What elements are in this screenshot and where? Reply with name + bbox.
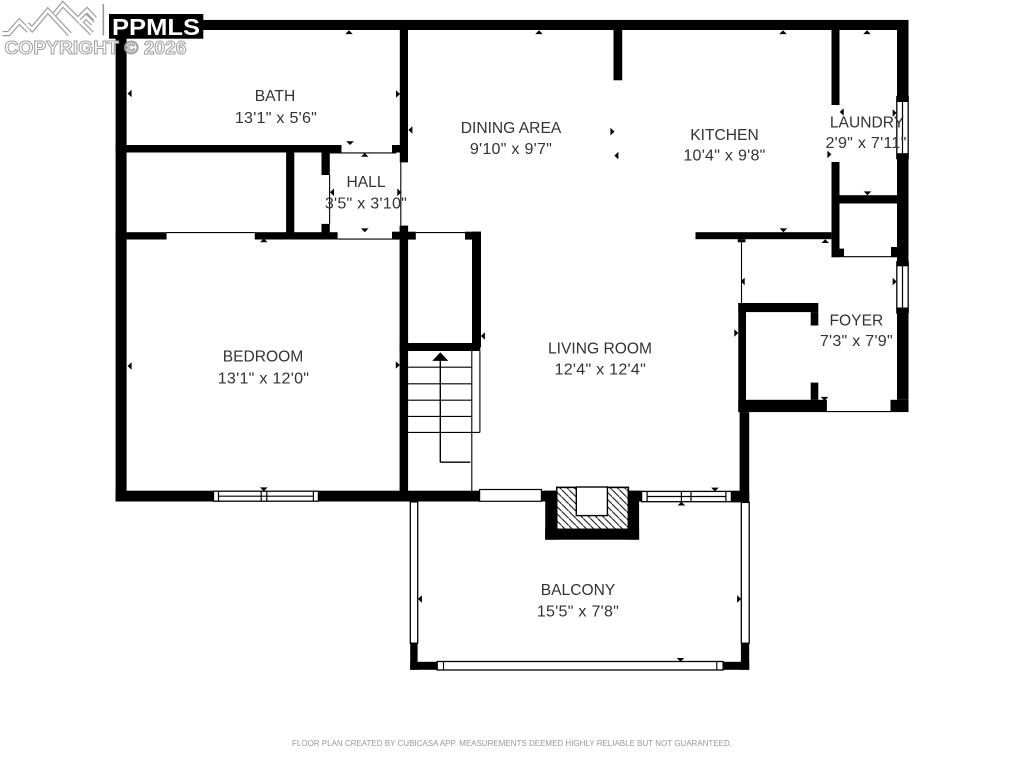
svg-text:FLOOR PLAN CREATED BY CUBICASA: FLOOR PLAN CREATED BY CUBICASA APP. MEAS… [292,739,732,748]
svg-text:BATH: BATH [255,88,295,105]
svg-text:2'9" x 7'11": 2'9" x 7'11" [825,134,906,152]
svg-text:7'3" x 7'9": 7'3" x 7'9" [820,332,893,350]
svg-text:BALCONY: BALCONY [541,582,616,599]
svg-text:FOYER: FOYER [830,312,884,329]
svg-text:LAUNDRY: LAUNDRY [830,114,905,131]
svg-text:BEDROOM: BEDROOM [223,349,304,366]
svg-text:12'4" x 12'4": 12'4" x 12'4" [555,361,647,379]
svg-text:HALL: HALL [346,174,385,191]
svg-text:LIVING ROOM: LIVING ROOM [548,340,652,357]
svg-text:10'4" x 9'8": 10'4" x 9'8" [683,146,765,164]
svg-text:DINING AREA: DINING AREA [461,120,562,137]
svg-text:13'1" x 5'6": 13'1" x 5'6" [235,109,317,127]
svg-text:9'10" x 9'7": 9'10" x 9'7" [470,140,552,158]
svg-text:COPYRIGHT © 2026: COPYRIGHT © 2026 [5,37,187,58]
svg-text:15'5" x 7'8": 15'5" x 7'8" [537,602,619,620]
svg-text:13'1" x 12'0": 13'1" x 12'0" [218,370,310,388]
svg-text:KITCHEN: KITCHEN [690,127,758,144]
svg-text:3'5" x 3'10": 3'5" x 3'10" [325,194,407,212]
